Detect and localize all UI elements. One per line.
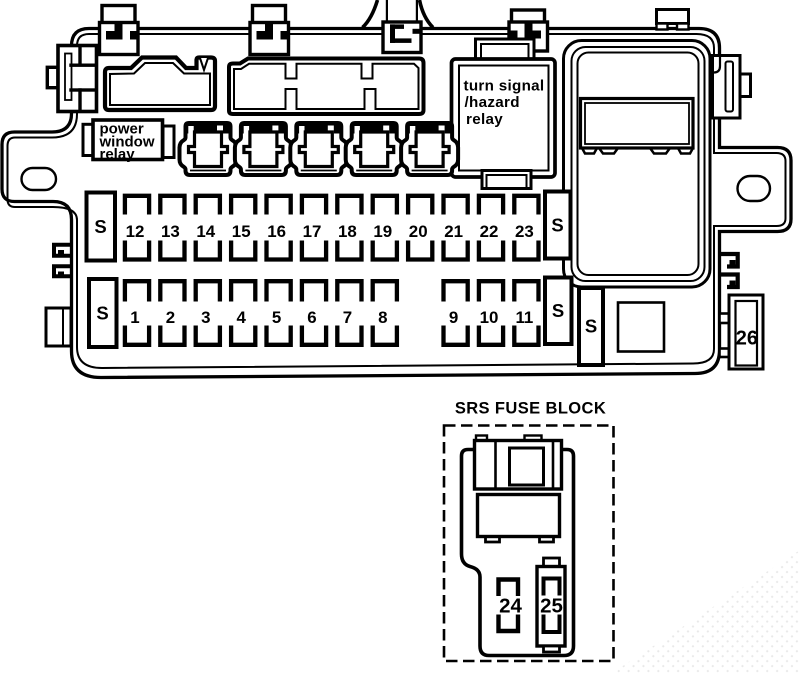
svg-text:S: S [585,316,597,337]
svg-text:20: 20 [409,222,428,241]
svg-text:S: S [551,215,563,236]
svg-text:4: 4 [236,308,246,327]
svg-text:13: 13 [161,222,180,241]
svg-text:21: 21 [444,222,463,241]
svg-text:11: 11 [515,308,533,327]
svg-text:24: 24 [499,595,522,618]
svg-text:26: 26 [736,327,758,349]
svg-text:relay: relay [466,111,503,128]
svg-text:1: 1 [130,308,139,327]
svg-text:9: 9 [449,308,458,327]
svg-text:2: 2 [166,308,175,327]
svg-text:25: 25 [540,595,563,618]
svg-text:12: 12 [126,222,145,241]
svg-text:/hazard: /hazard [465,94,520,111]
svg-text:16: 16 [267,222,286,241]
svg-text:relay: relay [100,146,136,163]
svg-text:S: S [94,216,106,237]
svg-text:8: 8 [378,308,387,327]
svg-text:SRS FUSE BLOCK: SRS FUSE BLOCK [455,400,606,418]
svg-text:5: 5 [272,308,281,327]
svg-text:10: 10 [480,308,499,327]
svg-text:turn signal: turn signal [464,78,545,95]
svg-text:15: 15 [232,222,251,241]
svg-text:14: 14 [196,222,215,241]
svg-text:19: 19 [373,222,392,241]
svg-text:S: S [552,300,564,321]
svg-text:23: 23 [515,222,534,241]
svg-text:18: 18 [338,222,357,241]
svg-text:6: 6 [307,308,316,327]
svg-text:17: 17 [303,222,322,241]
svg-text:7: 7 [343,308,352,327]
svg-text:3: 3 [201,308,210,327]
svg-text:S: S [96,303,108,324]
svg-text:22: 22 [480,222,499,241]
